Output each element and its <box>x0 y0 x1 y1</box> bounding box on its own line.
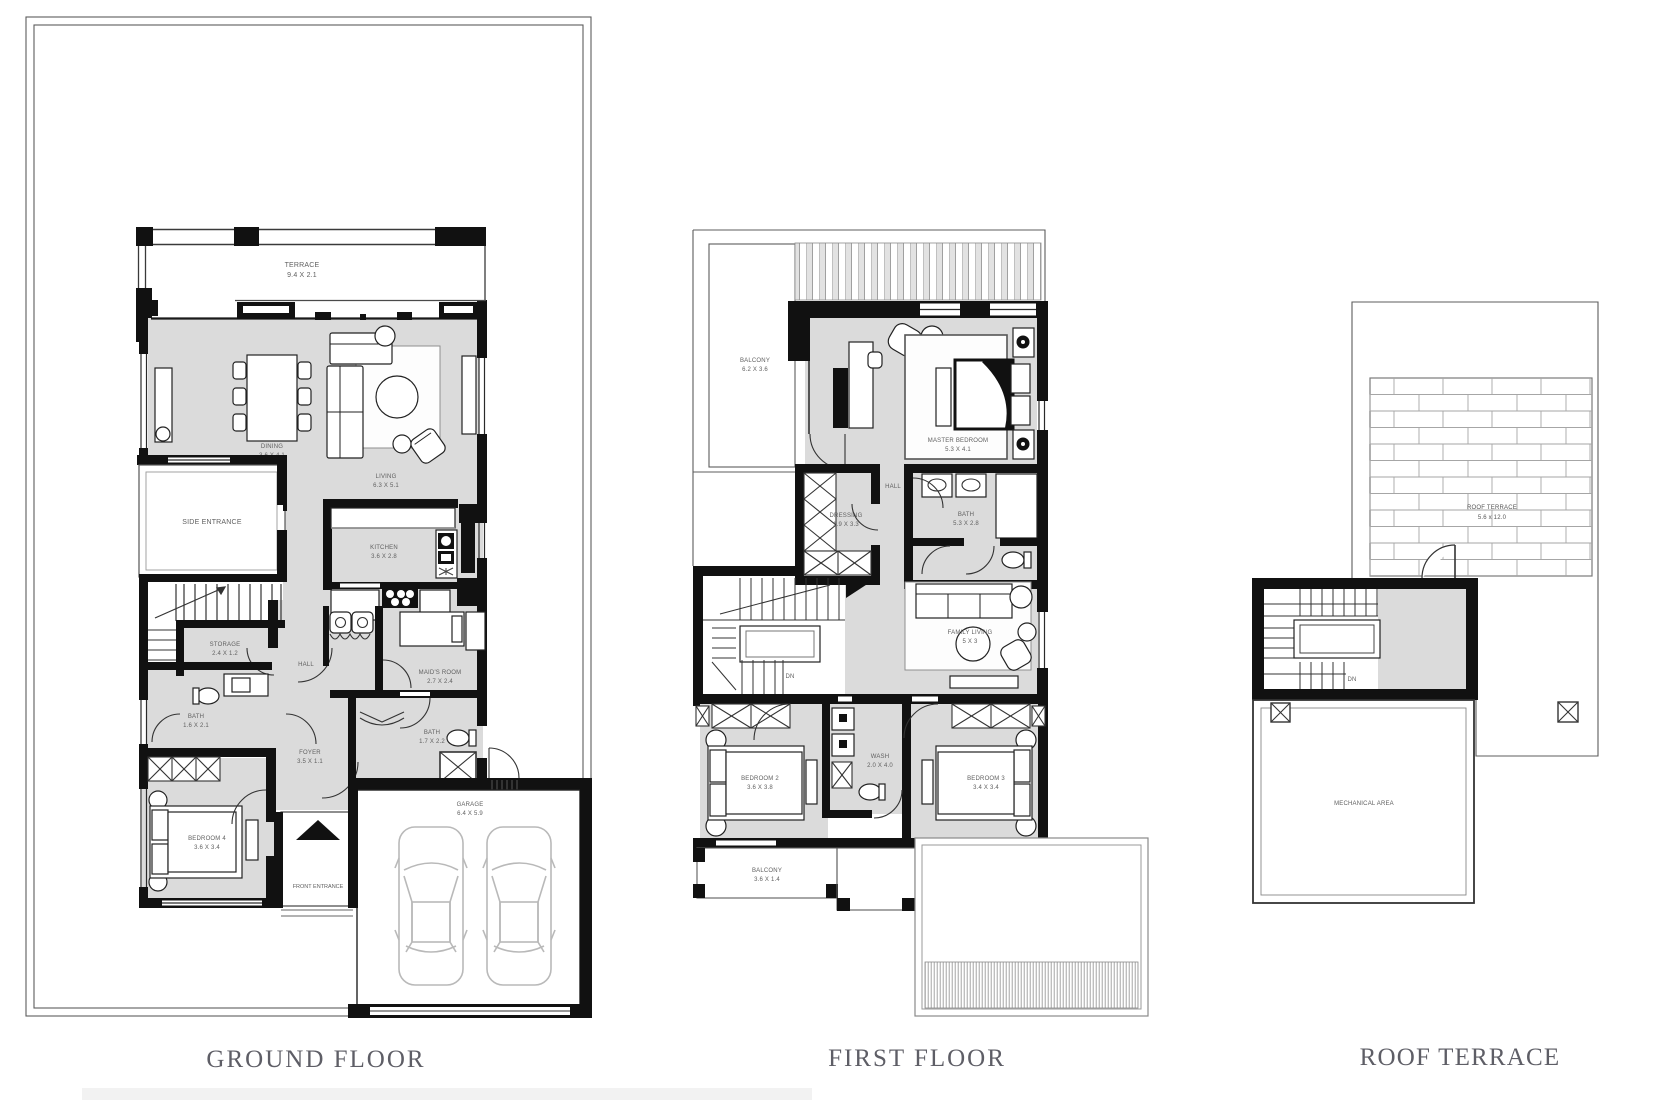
svg-text:ROOF TERRACE: ROOF TERRACE <box>1467 505 1517 511</box>
svg-text:MECHANICAL AREA: MECHANICAL AREA <box>1334 801 1394 807</box>
svg-text:5.6 x 12.0: 5.6 x 12.0 <box>1478 515 1507 521</box>
svg-text:DRESSING: DRESSING <box>830 513 863 519</box>
svg-text:MAID'S ROOM: MAID'S ROOM <box>419 670 462 676</box>
svg-text:3.5 X 1.1: 3.5 X 1.1 <box>297 759 323 765</box>
svg-text:KITCHEN: KITCHEN <box>370 545 398 551</box>
svg-text:6.3 X 5.1: 6.3 X 5.1 <box>373 483 399 489</box>
svg-text:GARAGE: GARAGE <box>457 802 484 808</box>
svg-text:BATH: BATH <box>424 730 440 736</box>
svg-text:SIDE ENTRANCE: SIDE ENTRANCE <box>182 519 242 526</box>
svg-text:3.6 X 1.4: 3.6 X 1.4 <box>754 877 780 883</box>
svg-text:5 X 3: 5 X 3 <box>962 639 977 645</box>
svg-text:3.6 X 2.8: 3.6 X 2.8 <box>371 554 397 560</box>
svg-text:BATH: BATH <box>958 512 974 518</box>
svg-text:HALL: HALL <box>885 484 901 490</box>
svg-text:9.4 X 2.1: 9.4 X 2.1 <box>287 272 317 279</box>
svg-text:HALL: HALL <box>298 662 314 668</box>
svg-text:3.4 X 3.4: 3.4 X 3.4 <box>973 785 999 791</box>
svg-text:BALCONY: BALCONY <box>752 868 782 874</box>
svg-text:LIVING: LIVING <box>376 474 397 480</box>
svg-text:FRONT ENTRANCE: FRONT ENTRANCE <box>293 884 344 890</box>
svg-text:5.3 X 4.1: 5.3 X 4.1 <box>945 447 971 453</box>
svg-text:STORAGE: STORAGE <box>210 642 241 648</box>
svg-text:WASH: WASH <box>871 754 890 760</box>
svg-text:FIRST FLOOR: FIRST FLOOR <box>828 1045 1006 1072</box>
svg-text:1.7 X 2.2: 1.7 X 2.2 <box>419 739 445 745</box>
svg-text:6.2 X 3.6: 6.2 X 3.6 <box>742 367 768 373</box>
svg-text:GROUND FLOOR: GROUND FLOOR <box>206 1046 425 1073</box>
svg-text:2.7 X 2.4: 2.7 X 2.4 <box>427 679 453 685</box>
svg-text:BEDROOM 4: BEDROOM 4 <box>188 836 226 842</box>
svg-text:BEDROOM 2: BEDROOM 2 <box>741 776 779 782</box>
svg-text:MASTER BEDROOM: MASTER BEDROOM <box>928 438 988 444</box>
svg-text:FAMILY LIVING: FAMILY LIVING <box>948 630 993 636</box>
svg-text:3.6 X 3.8: 3.6 X 3.8 <box>747 785 773 791</box>
svg-text:1.9 X 3.3: 1.9 X 3.3 <box>833 522 859 528</box>
svg-text:DINING: DINING <box>261 444 283 450</box>
svg-text:1.6 X 2.1: 1.6 X 2.1 <box>183 723 209 729</box>
svg-text:DN: DN <box>785 674 794 680</box>
svg-text:TERRACE: TERRACE <box>285 262 320 269</box>
svg-text:2.0 X 4.0: 2.0 X 4.0 <box>867 763 893 769</box>
svg-text:BALCONY: BALCONY <box>740 358 770 364</box>
svg-text:ROOF TERRACE: ROOF TERRACE <box>1360 1044 1561 1071</box>
svg-text:3.6 X 3.4: 3.6 X 3.4 <box>194 845 220 851</box>
svg-text:BEDROOM 3: BEDROOM 3 <box>967 776 1005 782</box>
svg-text:2.4 X 1.2: 2.4 X 1.2 <box>212 651 238 657</box>
svg-text:5.3 X 2.8: 5.3 X 2.8 <box>953 521 979 527</box>
svg-text:BATH: BATH <box>188 714 204 720</box>
svg-text:DN: DN <box>1347 677 1356 683</box>
svg-text:6.4 X 5.9: 6.4 X 5.9 <box>457 811 483 817</box>
svg-text:FOYER: FOYER <box>299 750 321 756</box>
